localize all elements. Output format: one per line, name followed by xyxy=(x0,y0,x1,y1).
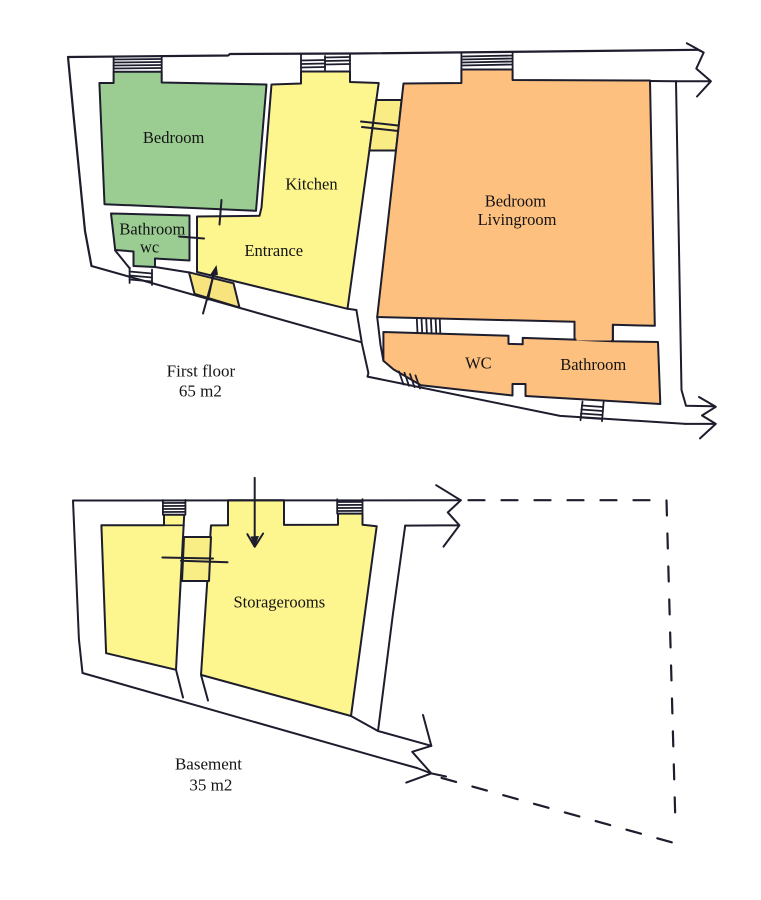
svg-text:Livingroom: Livingroom xyxy=(478,210,557,229)
svg-text:Bathroom: Bathroom xyxy=(119,220,185,239)
svg-text:wc: wc xyxy=(140,238,159,257)
svg-text:Entrance: Entrance xyxy=(244,241,303,260)
svg-text:35 m2: 35 m2 xyxy=(189,776,232,795)
svg-text:WC: WC xyxy=(465,354,492,373)
svg-text:Bathroom: Bathroom xyxy=(560,355,626,374)
svg-text:Bedroom: Bedroom xyxy=(485,192,547,211)
svg-text:First floor: First floor xyxy=(167,362,236,381)
svg-text:Storagerooms: Storagerooms xyxy=(233,593,325,612)
svg-text:Basement: Basement xyxy=(175,755,242,774)
svg-text:Bedroom: Bedroom xyxy=(143,128,205,147)
svg-text:65 m2: 65 m2 xyxy=(179,382,222,401)
svg-text:Kitchen: Kitchen xyxy=(285,175,337,194)
